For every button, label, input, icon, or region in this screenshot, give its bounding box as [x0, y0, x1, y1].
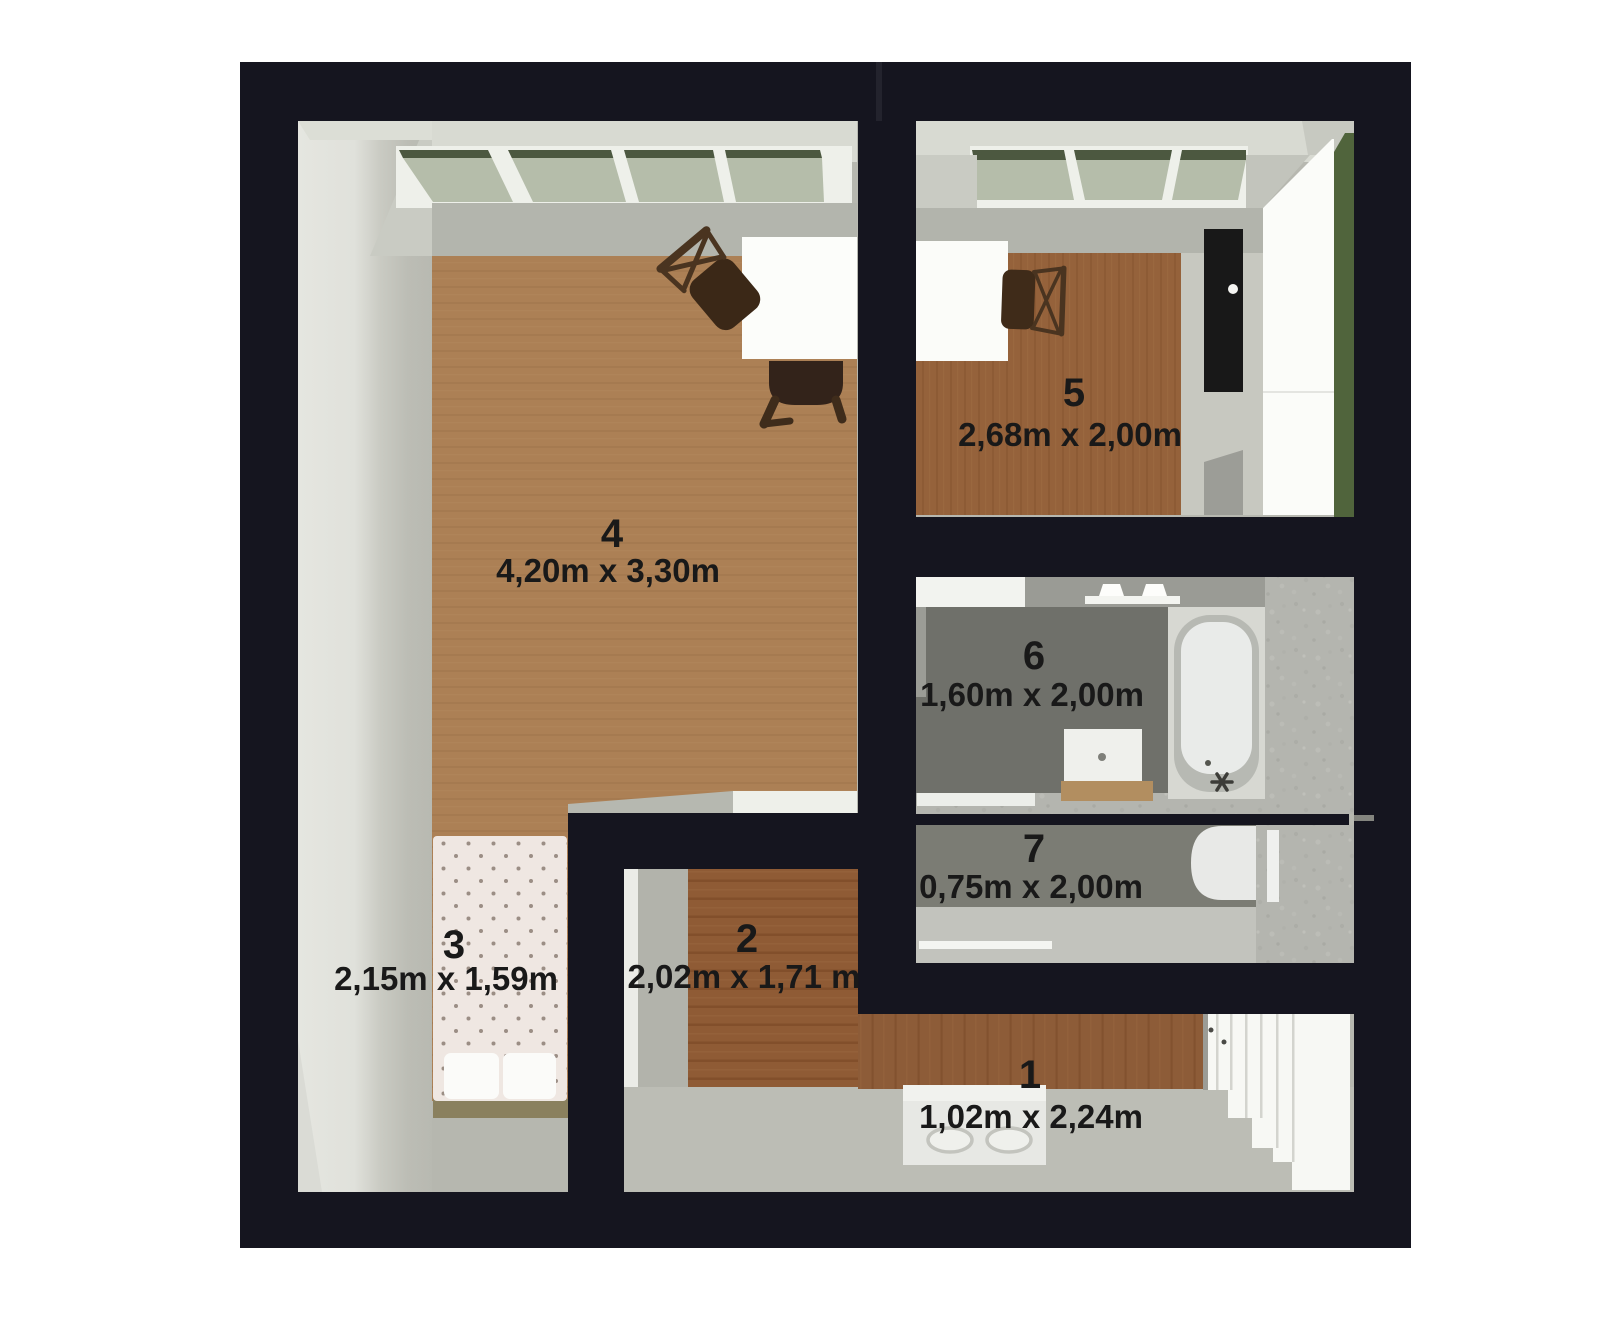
- svg-text:1,60m x 2,00m: 1,60m x 2,00m: [920, 676, 1144, 713]
- svg-text:2,02m x 1,71 m: 2,02m x 1,71 m: [628, 958, 861, 995]
- svg-text:5: 5: [1063, 371, 1085, 415]
- svg-text:2: 2: [736, 917, 758, 961]
- svg-text:6: 6: [1023, 634, 1045, 678]
- svg-text:0,75m x 2,00m: 0,75m x 2,00m: [919, 868, 1143, 905]
- svg-text:7: 7: [1023, 827, 1045, 871]
- svg-text:1,02m x 2,24m: 1,02m x 2,24m: [919, 1098, 1143, 1135]
- svg-text:1: 1: [1019, 1053, 1041, 1097]
- svg-text:4,20m x 3,30m: 4,20m x 3,30m: [496, 552, 720, 589]
- svg-text:2,68m x 2,00m: 2,68m x 2,00m: [958, 416, 1182, 453]
- svg-text:2,15m x 1,59m: 2,15m x 1,59m: [334, 960, 558, 997]
- svg-text:4: 4: [601, 512, 624, 556]
